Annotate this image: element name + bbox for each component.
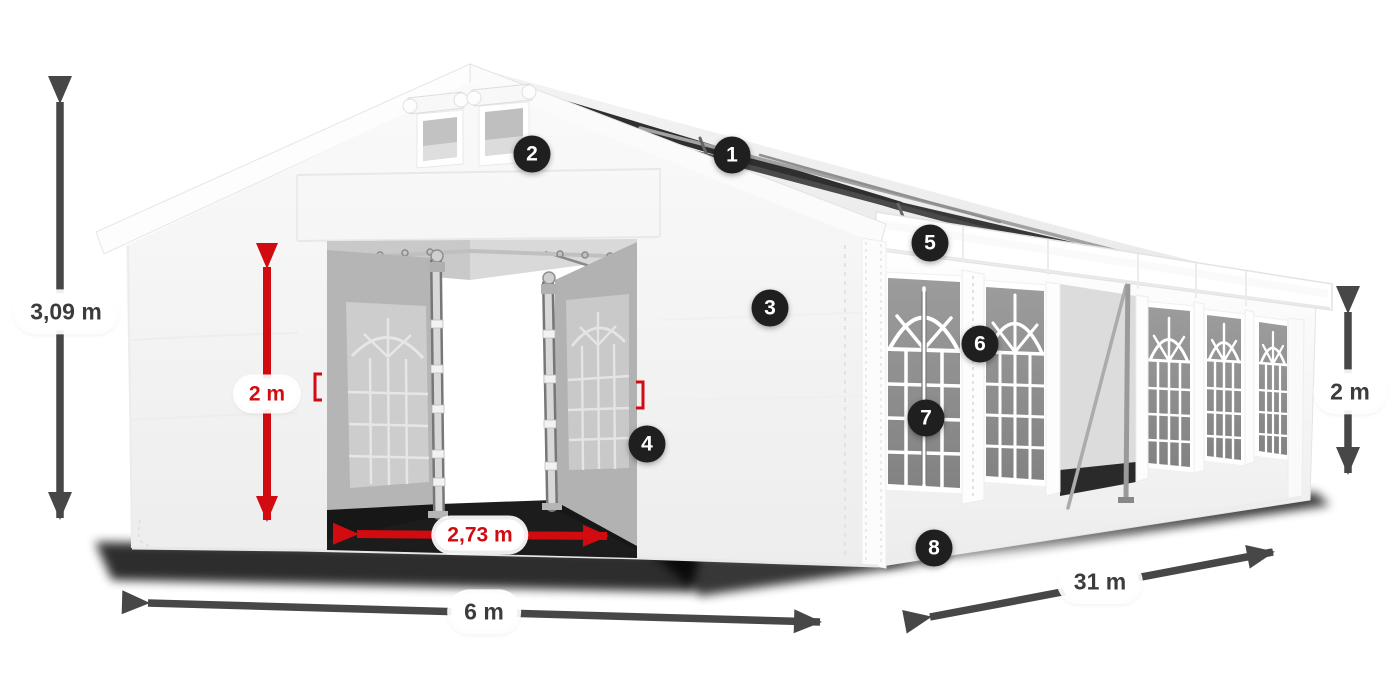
dim-label-door-width: 2,73 m (435, 519, 524, 550)
dim-label-side-wall-height: 2 m (1317, 373, 1383, 410)
hotspot-badge-7[interactable]: 7 (908, 400, 945, 437)
dim-label-front-width: 6 m (451, 593, 517, 630)
hotspot-badge-6[interactable]: 6 (962, 326, 999, 363)
dim-label-overall-height: 3,09 m (17, 293, 115, 330)
dim-label-door-height: 2 m (237, 378, 297, 409)
hotspot-badge-4[interactable]: 4 (629, 426, 666, 463)
hotspot-badge-8[interactable]: 8 (916, 530, 953, 567)
hotspot-badge-2[interactable]: 2 (514, 136, 551, 173)
hotspot-badge-1[interactable]: 1 (714, 137, 751, 174)
dim-label-side-length: 31 m (1061, 563, 1139, 600)
tent-illustration (0, 0, 1400, 700)
hotspot-badge-5[interactable]: 5 (912, 225, 949, 262)
hotspot-badge-3[interactable]: 3 (752, 290, 789, 327)
tent-dimension-diagram: 3,09 m 2 m 2,73 m 6 m 31 m 2 m 1 2 3 4 5… (0, 0, 1400, 700)
